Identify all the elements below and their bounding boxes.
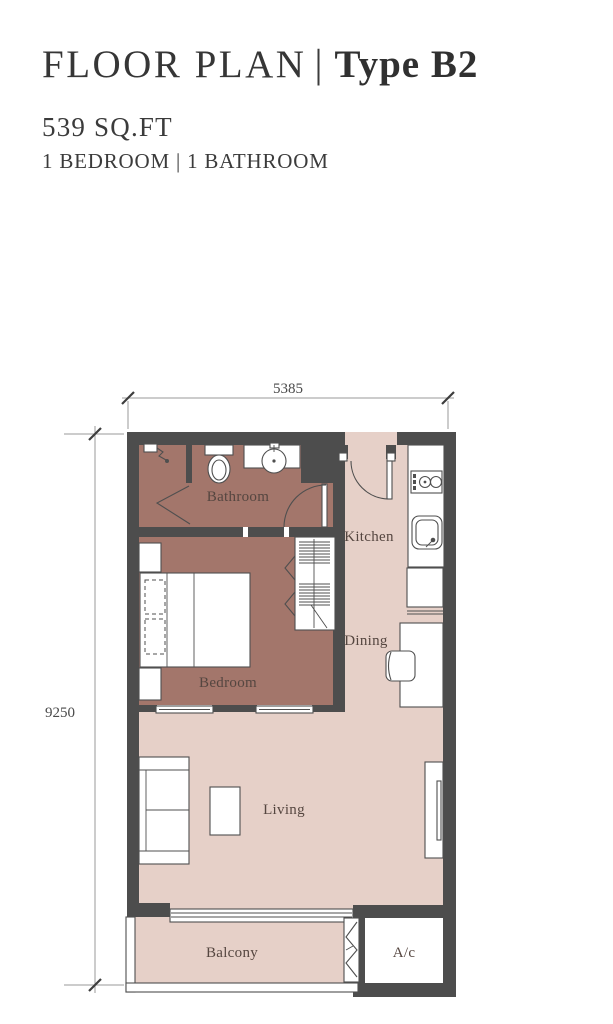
dimension-width-label: 5385 xyxy=(273,381,303,397)
fridge-icon xyxy=(407,568,443,614)
room-label-balcony: Balcony xyxy=(206,945,258,961)
ac-louver-icon xyxy=(344,918,359,982)
room-label-living: Living xyxy=(263,802,305,818)
dining-chair-icon xyxy=(386,651,415,681)
tv-console-icon xyxy=(425,762,443,858)
room-label-dining: Dining xyxy=(344,633,388,649)
dimension-height-label: 9250 xyxy=(45,705,75,721)
room-label-bathroom: Bathroom xyxy=(207,489,269,505)
room-label-bedroom: Bedroom xyxy=(199,675,257,691)
dimension-left: 9250 xyxy=(45,426,124,993)
coffee-table-icon xyxy=(210,787,240,835)
floor-plan-page: FLOOR PLAN|Type B2 539 SQ.FT 1 BEDROOM |… xyxy=(0,0,613,1024)
room-label-kitchen: Kitchen xyxy=(344,529,394,545)
vanity-sink-icon xyxy=(244,443,300,473)
floor-plan-canvas: 5385 9250 Bathroom Kitchen Bedroom Dinin… xyxy=(0,0,613,1024)
dimension-top: 5385 xyxy=(122,381,454,429)
room-label-ac: A/c xyxy=(393,945,416,961)
balcony-sliding-door xyxy=(170,909,353,922)
sofa-icon xyxy=(139,757,189,864)
kitchen-sink-icon xyxy=(412,516,442,549)
stove-icon xyxy=(411,471,442,493)
